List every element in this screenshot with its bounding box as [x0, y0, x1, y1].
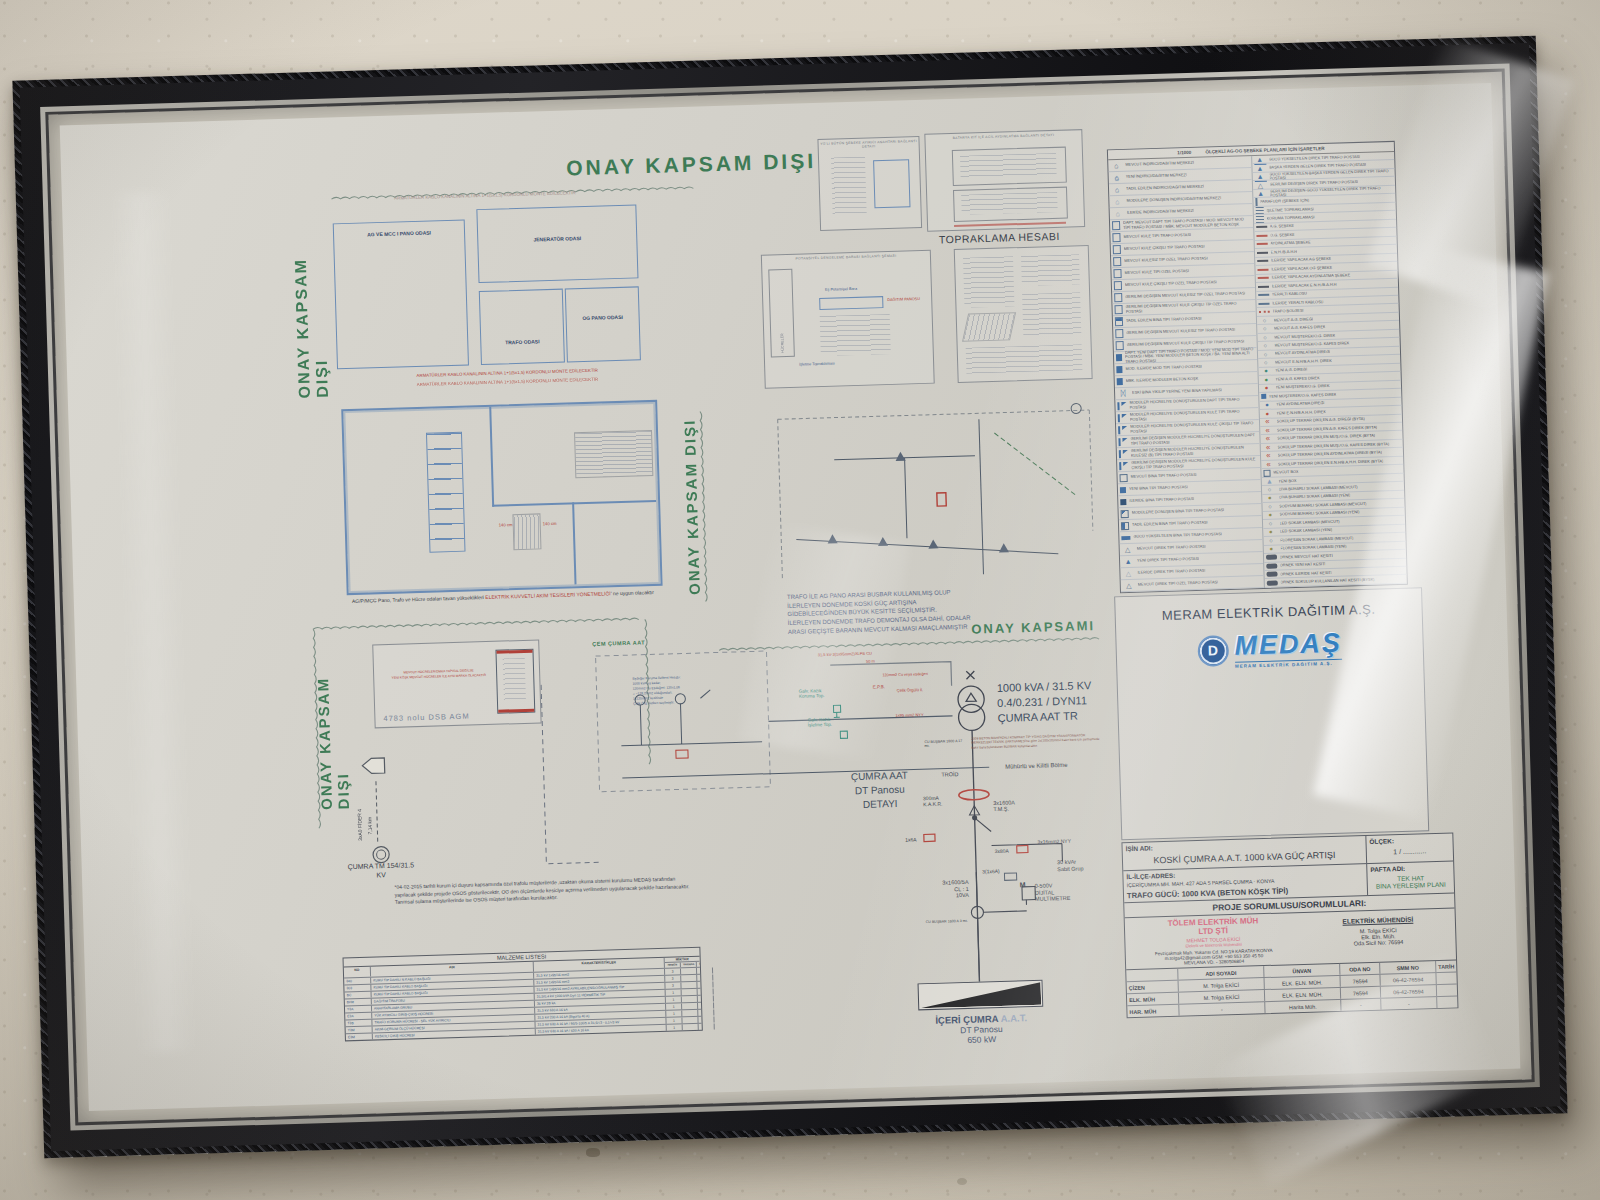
medas-logo: D MEDAŞ MERAM ELEKTRİK DAĞITIM A.Ş.	[1116, 625, 1423, 672]
legend-item-label: E.N.H./B.A.H.H	[1270, 250, 1297, 255]
stamp-onay-kapsam-disi-bottom: ONAY KAPSAM DIŞI	[313, 639, 352, 810]
legend-item-label: ÖRNEK İLERİDE HAT KESİTİ	[1280, 571, 1332, 577]
dim-label: 140 cm	[499, 522, 513, 527]
glass: ONAY KAPSAM DIŞI ONAY KAPSAM DIŞI ONAY K…	[48, 72, 1531, 1123]
legend-item-label: MEVCUT A.G. DİREĞİ	[1273, 317, 1313, 322]
legend-symbol-icon	[1256, 226, 1267, 228]
legend-item-label: MEVCUT DİREK TİPİ TRAFO POSTASI	[1137, 545, 1206, 551]
legend-symbol-icon	[1118, 425, 1127, 433]
legend-symbol-icon	[1114, 305, 1122, 314]
cable-label: 31,5 kV-3(1x95mm2)XLPE CU	[818, 651, 872, 658]
tms-label: 3x1600AT.M.Ş.	[993, 799, 1015, 812]
legend-item-label: YENİ AYDINLATMA DİREĞİ	[1276, 401, 1325, 406]
legend-title: ÖLÇEKLİ AG-OG ŞEBEKE PLANLARI İÇİN İŞARE…	[1205, 146, 1324, 155]
topraklama-hesabi-label: TOPRAKLAMA HESABI	[909, 229, 1089, 246]
troid-label: TROİD	[941, 771, 958, 778]
legend-item-label: YENİ MÜŞTEREK/O.G. KAFES DİREK	[1269, 393, 1337, 399]
legend-symbol-icon	[1263, 460, 1275, 469]
stamp-onay-kapsam-disi-left: ONAY KAPSAM DIŞI	[290, 213, 331, 399]
legend-item-label: İLERİDE YAPILACAK AG ŞEBEKE	[1271, 257, 1332, 263]
legend-symbol-icon	[1257, 285, 1268, 287]
multimeter-m: M	[1020, 881, 1026, 888]
room-label: JENERATÖR ODASI	[478, 233, 636, 244]
isin-adi-value: KOSKİ ÇUMRA A.A.T. 1000 kVA GÜÇ ARTIŞI	[1126, 849, 1363, 866]
legend-symbol-icon	[1118, 437, 1127, 445]
adres-label: İL-İLÇE-ADRES:	[1126, 872, 1175, 880]
legend-item-label: MEVCUT E.N.H/B.A.H.H. DİREK	[1275, 359, 1332, 365]
pano-label: DAĞITIM PANOSU	[887, 297, 920, 302]
legend-symbol-icon	[1116, 366, 1122, 373]
room-og-pano: OG PANO ODASI	[565, 286, 641, 362]
legend-item-label: GERİLİMİ DEĞİŞEN MEVCUT KULE ÇIKIŞLI TİP…	[1127, 340, 1245, 348]
legend-item-label: İLERİDE YERALTI KABLOSU	[1272, 300, 1324, 306]
epb-label: E.P.B.	[873, 684, 885, 689]
legend-item-label: MODÜLERE DÖNÜŞEN İNDİRİCİ/DAĞITIM MERKEZ…	[1126, 196, 1221, 203]
detail-box-title: POTANSİYEL DENGELEME BARASI BAĞLANTI ŞEM…	[762, 251, 930, 262]
legend-item-label: MEVCUT KULE ÇIKIŞLI TİP TRAFO POSTASI	[1124, 245, 1205, 251]
legend-symbol-icon	[1119, 449, 1128, 457]
detail-box-emergency-light: BATARYA KİT İLE ACİL AYDINLATMA BAĞLANTI…	[924, 129, 1085, 232]
legend-item-label: İLERİDE YAPILACAK OG ŞEBEKE	[1271, 266, 1332, 272]
legend-symbol-icon	[1261, 394, 1266, 399]
legend-left-column: MEVCUT İNDİRİCİ/DAĞITIM MERKEZİ YENİ İND…	[1108, 156, 1264, 592]
frame-silver-bevel: ONAY KAPSAM DIŞI ONAY KAPSAM DIŞI ONAY K…	[40, 63, 1540, 1130]
nyy16-label: 3x16mm2 NYY	[1037, 838, 1071, 845]
materials-table: MALZEME LİSTESİ NO ADI KARAKTERİSTİKLER …	[342, 947, 702, 1042]
muhurlu-label: Mühürlü ve Kilitli Bölme	[1005, 762, 1068, 770]
celik-label: Çelik Örgülü İl.	[897, 687, 923, 693]
legend-symbol-icon	[1112, 233, 1120, 242]
legend-symbol-icon	[1257, 277, 1268, 279]
legend-item-label: YENİ BOX	[1278, 478, 1297, 483]
legend-item-label: MEVCUT BOX	[1273, 470, 1299, 475]
legend-item-label: TADİL EDİLEN İNDİRİCİ/DAĞITIM MERKEZİ	[1126, 185, 1204, 191]
detail-box-gnd-calc	[954, 245, 1093, 383]
legend-item-label: SODYUM BUHARLI SOKAK LAMBASI (YENİ)	[1279, 510, 1359, 516]
legend-symbol-icon	[1119, 473, 1127, 481]
legend-item-label: TRAFO BÖLGESİ	[1272, 309, 1303, 314]
cem-label: ÇEM ÇUMRA AAT	[592, 639, 645, 647]
dsb-cell	[495, 649, 535, 714]
legend-item-label: KORUMA TOPRAKLAMASI	[1266, 215, 1314, 220]
isletme-top-label2: Galv. Kazıkİşletme Top.	[808, 717, 832, 728]
legend-symbol-icon	[1113, 269, 1121, 278]
legend-item-label: MBK. İLERİDE MODÜLER BETON KÖŞK	[1126, 377, 1199, 383]
legend-symbol-icon	[1260, 383, 1272, 392]
osos-note: *04-02-2015 tarihli kurum içi duyuru kap…	[394, 874, 740, 907]
legend-item-label: SÖKÜLÜP TEKRAR DİKİLEN A.G. KAFES DİREK …	[1277, 425, 1378, 432]
legend-item-label: GERİLİMİ DEĞİŞEN MODÜLER HÜCRELİYE DÖNÜŞ…	[1130, 434, 1257, 446]
legend-item-label: MEVCUT KULE ÇIKIŞLI TİP ÖZEL TRAFO POSTA…	[1125, 281, 1217, 288]
legend-item-label: GERİLİMİ DEĞİŞEN MODÜLER HÜCRELİYE DÖNÜŞ…	[1131, 458, 1258, 470]
legend-symbol-icon	[1114, 293, 1122, 302]
legend-item-label: MEVCUT KULE TİPİ TRAFO POSTASI	[1123, 233, 1191, 239]
stamp-onay-kapsam-disi-top: ONAY KAPSAM DIŞI	[541, 148, 842, 181]
busbar17-label: CU BUŞBAR 1600 A 17 mt.	[924, 739, 966, 748]
legend-symbol-icon	[1257, 260, 1268, 262]
legend-item-label: YENİ BİNA TİPİ TRAFO POSTASI	[1129, 486, 1188, 492]
legend-item-label: CİVA BUHARLI SOKAK LAMBASI (MEVCUT)	[1278, 485, 1357, 491]
legend-symbol-icon	[1117, 378, 1123, 385]
legend-symbol-icon	[1255, 189, 1267, 198]
legend-item-label: MEVCUT KULESİZ TİP ÖZEL TRAFO POSTASI	[1124, 257, 1208, 264]
legend-scale: 1/1000	[1177, 150, 1191, 155]
medas-emblem-icon: D	[1197, 635, 1229, 667]
legend-item-label: İLERİDE YAPILACAK E.N.H./B.A.H.H	[1271, 282, 1336, 288]
legend-symbol-icon	[1121, 509, 1129, 517]
legend-symbol-icon	[1263, 469, 1270, 476]
legend-item-label: MODÜLER HÜCRELİYE DÖNÜŞTÜRÜLEN KULE ÇIKI…	[1130, 422, 1257, 434]
legend-symbol-icon	[1116, 354, 1122, 361]
dsb-label: 4783 nolu DSB AGM	[383, 712, 469, 724]
legend-symbol-icon	[1116, 341, 1124, 350]
pafta-value-2: BİNA YERLEŞİM PLANI	[1371, 881, 1451, 890]
legend-symbol-icon	[1119, 461, 1128, 469]
legend-symbol-icon	[1122, 545, 1134, 554]
legend-item-label: MEVCUT MÜŞTEREK/O.G. KAFES DİREK	[1274, 341, 1349, 347]
legend-symbol-icon	[1121, 535, 1130, 539]
company-block: MERAM ELEKTRİK DAĞITIM A.Ş. D MEDAŞ MERA…	[1114, 587, 1429, 840]
legend-item-label: MODÜLERE DÖNÜŞEN BİNA TİPİ TRAFO POSTASI	[1132, 509, 1225, 516]
legend-symbol-icon	[1113, 257, 1121, 266]
legend-symbol-icon	[1121, 521, 1129, 529]
room-trafo: TRAFO ODASI	[479, 289, 565, 365]
legend-item-label: FLORESAN SOKAK LAMBASI (YENİ)	[1280, 545, 1346, 551]
legend-symbol-icon	[1266, 563, 1277, 568]
isin-adi-label: İŞİN ADI:	[1126, 844, 1153, 852]
legend-symbol-icon	[1115, 329, 1123, 338]
legend-symbol-icon	[1256, 243, 1267, 245]
busbar3-label: CU BUŞBAR 1600 A 3 mt.	[926, 919, 968, 924]
legend-item-label: ÖRNEK SÖKÜLÜP KULLANILAN HAT KESİTİ (BYS…	[1280, 578, 1374, 585]
legend-item-label: SÖKÜLÜP TEKRAR DİKİLEN E.N.H/B.A.H.H. Dİ…	[1278, 459, 1384, 466]
legend-item-label: ÖRNEK YENİ HAT KESİTİ	[1280, 562, 1326, 567]
legend-item-label: SÖKÜLÜP TEKRAR DİKİLEN A.G. DİREĞİ (BYTA…	[1276, 417, 1364, 424]
frame-inner-black: ONAY KAPSAM DIŞI ONAY KAPSAM DIŞI ONAY K…	[20, 43, 1561, 1151]
feeder-line-label: 3xA0 FİDER 4	[355, 777, 363, 841]
legend-symbol-icon	[1117, 389, 1129, 398]
legend-item-label: SÖKÜLÜP TEKRAR DİKİLEN AYDINLATMA DİREĞİ…	[1277, 450, 1382, 457]
olcek-value: 1 / ............	[1370, 847, 1450, 856]
legend-item-label: İLERİDE BİNA TİPİ TRAFO POSTASI	[1129, 497, 1194, 503]
room-label: OG PANO ODASI	[567, 313, 639, 321]
legend-item-label: TADİL EDİLEN BİNA TİPİ TRAFO POSTASI	[1126, 317, 1202, 323]
room-label: AG VE MCC I PANO ODASI	[334, 229, 464, 239]
legend-item-label: GÜCÜ YÜKSELTİLEN BİNA TİPİ TRAFO POSTASI	[1133, 533, 1222, 540]
legend-right-column: GÜCÜ YÜKSELTİLEN DİREK TİPİ TRAFO POSTAS…	[1252, 152, 1407, 588]
detail-box-switch: YG'Lİ BÜTÜN ŞEBEKE AYIRICI ANAHTARI BAĞL…	[817, 136, 922, 231]
legend-item-label: A.G. ŞEBEKE	[1270, 224, 1295, 229]
legend-item-label: TADİL EDİLEN BİNA TİPİ TRAFO POSTASI	[1132, 521, 1208, 527]
legend-symbol-icon	[1112, 209, 1124, 218]
caption-pre: AG/P/MCC Pano, Trafo ve Hücre odaları ta…	[352, 594, 486, 604]
generator-detail	[574, 430, 653, 478]
legend-item-label: SÖKÜLÜP TEKRAR DİKİLEN MÜŞ./O.G. DİREK (…	[1277, 434, 1375, 441]
legend-symbol-icon	[1111, 185, 1123, 194]
legend-item-label: YERALTI KABLOSU	[1272, 292, 1307, 297]
legend-item-label: GERİLİMİ DEĞİŞEN MODÜLER HÜCRELİYE DÖNÜŞ…	[1131, 446, 1258, 458]
eng-title: ELEKTRİK MÜHENDİSİ	[1304, 915, 1452, 926]
legend-item-label: AYDINLATMA ŞEBEKE	[1270, 241, 1311, 246]
detail-box-title: BATARYA KİT İLE ACİL AYDINLATMA BAĞLANTI…	[925, 130, 1081, 141]
legend-symbol-icon	[1257, 269, 1268, 271]
legend-item-label: İLERİDE İNDİRİCİ/DAĞITIM MERKEZİ	[1127, 209, 1195, 215]
legend-symbol-icon	[1120, 486, 1126, 492]
legend-item-label: GÜCÜ YÜKSELTİLEN DİREK TİPİ TRAFO POSTAS…	[1269, 155, 1361, 162]
legend-item-label: YENİ A.G. KAFES DİREK	[1275, 376, 1320, 381]
legend-item-label: MEVCUT BİNA TİPİ TRAFO POSTASI	[1131, 473, 1197, 479]
feeder-len-label: 7,14 km	[365, 783, 373, 835]
legend-item-label: MEVCUT A.G. KAFES DİREK	[1274, 325, 1326, 331]
legend-symbol-icon	[1114, 281, 1122, 290]
legend-symbol-icon	[1111, 173, 1123, 182]
dsb-agm-box: MEVCUT HÜCRELER/DMKA YAPISAL DEĞİLSEYENİ…	[372, 639, 541, 728]
legend-item-label: YENİ A.G. DİREĞİ	[1275, 368, 1307, 373]
f3-label: 3(1x6A)	[982, 868, 1000, 875]
pafta-label: PAFTA ADI:	[1370, 865, 1405, 873]
legend-item-label: YENİ E.N.H/B.A.H.H. DİREK	[1276, 410, 1326, 416]
medas-wordmark: MEDAŞ	[1234, 628, 1342, 662]
photo-of-framed-electrical-plan: { "colors":{"stamp_green":"#3e7b56","pla…	[0, 0, 1600, 1200]
legend-item-label: MEVCUT KULE TİPİ ÖZEL POSTASI	[1124, 269, 1189, 275]
legend-symbol-icon	[1266, 572, 1277, 577]
load-caption: İÇERİ ÇUMRA A.A.T. DT Panosu 650 kW	[898, 1011, 1064, 1047]
legend-item-label: MEVCUT DİREK TİPİ ÖZEL TRAFO POSTASI	[1138, 581, 1219, 587]
dim-label: 140 cm	[543, 521, 557, 526]
materials-rows: 340 KURU TİP DAHİLİ N KABLO BAŞLIĞI 31,5…	[344, 968, 702, 1041]
legend-item-label: İLERİDE YAPILACAK AYDINLATMA ŞEBEKE	[1271, 274, 1350, 280]
esdeger-hesap: Eşdeğer Koruma İletkeni Hesabı:1000 kVA …	[632, 674, 729, 706]
signature-table: ADI SOYADI ÜNVAN ODA NO SMM NO TARİH ÇİZ…	[1126, 959, 1457, 1017]
wall-scuff	[586, 1148, 600, 1157]
legend-table: 1/1000 ÖLÇEKLİ AG-OG ŞEBEKE PLANLARI İÇİ…	[1107, 141, 1408, 593]
hucreler-label: HÜCRELER	[778, 273, 784, 353]
company-title: MERAM ELEKTRİK DAĞITIM A.Ş.	[1116, 600, 1422, 624]
legend-symbol-icon	[1258, 311, 1269, 313]
legend-symbol-icon	[1111, 197, 1123, 206]
cable-len: 50 m	[866, 659, 875, 664]
legend-item-label: MEVCUT MÜŞTEREK/O.G. DİREK	[1274, 333, 1335, 339]
legend-item-label: YENİ İNDİRİCİ/DAĞITIM MERKEZİ	[1126, 174, 1187, 180]
legend-symbol-icon	[1255, 207, 1263, 214]
legend-item-label: GERİLİMİ DEĞİŞEN MEVCUT KULESİZ TİP ÖZEL…	[1125, 292, 1245, 300]
f1-label: 1x6A	[905, 836, 917, 842]
legend-symbol-icon	[1113, 245, 1121, 254]
ct-label: 3x1600/5ACL : 110VA	[924, 879, 969, 900]
legend-item-label: MODÜLER HÜCRELİYE DÖNÜŞTÜRÜLEN KULE TİPİ…	[1130, 410, 1257, 422]
bara-label: Eş Potansiyel Bara	[825, 287, 857, 292]
cable-ladder	[426, 432, 466, 553]
legend-symbol-icon	[1258, 302, 1269, 304]
title-block: İŞİN ADI: KOSKİ ÇUMRA A.A.T. 1000 kVA GÜ…	[1121, 832, 1458, 1018]
legend-item-label: SODYUM BUHARLI SOKAK LAMBASI (MEVCUT)	[1279, 502, 1367, 509]
legend-item-label: ÖRNEK MEVCUT HAT KESİTİ	[1279, 554, 1332, 560]
legend-item-label: CİVA BUHARLI SOKAK LAMBASI (YENİ)	[1279, 494, 1351, 500]
legend-item-label: MEVCUT AYDINLATMA DİREĞİ	[1274, 350, 1330, 356]
room-jenerator: JENERATÖR ODASI	[476, 204, 638, 283]
tm-label: ÇUMRA TM 154/31.5KV	[325, 860, 438, 882]
legend-symbol-icon	[1120, 498, 1126, 504]
legend-symbol-icon	[1118, 413, 1127, 421]
legend-item-label: YENİ DİREK TİPİ TRAFO POSTASI	[1137, 557, 1199, 563]
legend-item-label: MEVCUT İNDİRİCİ/DAĞITIM MERKEZİ	[1125, 161, 1194, 167]
room-ag-mcc: AG VE MCC I PANO ODASI	[333, 219, 469, 369]
legend-symbol-icon	[1110, 161, 1122, 170]
legend-symbol-icon	[1255, 215, 1263, 222]
legend-item-label: GERİLİMİ DEĞİŞEN DİREK TİPİ TRAFO POSTAS…	[1269, 180, 1358, 187]
frame-gap: ONAY KAPSAM DIŞI ONAY KAPSAM DIŞI ONAY K…	[45, 69, 1534, 1126]
legend-symbol-icon	[1258, 294, 1269, 296]
nyy95-label: 1x95 mm2 NYY	[895, 712, 923, 718]
multimetre-label: 0-500VDİJİTALMULTİMETRE	[1035, 882, 1071, 903]
legend-item-label: ESKİ BİNA YIKILIP YERİNE YENİ BİNA YAPIL…	[1132, 389, 1222, 396]
caption-red: ELEKTRİK KUVVETLİ AKIM TESİSLERİ YÖNETME…	[485, 590, 611, 600]
spec-line: ÇUMRA AAT TR	[997, 707, 1117, 725]
kvar-label: 30 kVArSabit Grup	[1057, 858, 1084, 873]
busbar-notes: TRAFO İLE AG PANO ARASI BUSBAR KULLANILM…	[787, 584, 1078, 636]
isletme-top-label: İşletme Topraklaması	[799, 362, 835, 367]
olcek-label: ÖLÇEK:	[1369, 837, 1394, 845]
caption-post: ' ne uygun olacaktır	[611, 589, 654, 596]
legend-symbol-icon	[1122, 557, 1134, 566]
cu120-label: 120mm2 Cu veya eşdeğeri	[882, 672, 927, 677]
room-label: TRAFO ODASI	[481, 338, 563, 346]
plan1-note-top: ARMATÜRLER KABLO KANALININ ALTINA 1+1(5x…	[330, 188, 640, 202]
drawing-sheet: ONAY KAPSAM DIŞI ONAY KAPSAM DIŞI ONAY K…	[60, 83, 1521, 1111]
legend-symbol-icon	[1115, 317, 1123, 326]
legend-symbol-icon	[1255, 198, 1257, 206]
wall-scuff	[957, 1178, 967, 1185]
legend-item-label: GERİLİMİ DEĞİŞEN MEVCUT KULESİZ TİP TRAF…	[1126, 328, 1235, 335]
legend-item-label: MODÜLER HÜCRELİYE DÖNÜŞTÜRÜLEN DAPT TİPİ…	[1129, 398, 1256, 410]
legend-symbol-icon	[1117, 401, 1126, 409]
sartname-note: 2008 BETON MAHFAZALI KOMPAKT TİP YG/AG D…	[971, 733, 1106, 750]
legend-symbol-icon	[1256, 235, 1267, 237]
legend-symbol-icon	[1266, 580, 1277, 585]
load-suffix: A.A.T.	[1000, 1012, 1027, 1024]
koruma-top-label: Galv. KazıkKoruma Top.	[799, 688, 825, 699]
f2-label: 3x80A	[995, 848, 1009, 854]
legend-item-label: FLORESAN SOKAK LAMBASI (MEVCUT)	[1280, 536, 1354, 542]
legend-symbol-icon	[1123, 581, 1135, 590]
detail-box-title: YG'Lİ BÜTÜN ŞEBEKE AYIRICI ANAHTARI BAĞL…	[818, 137, 918, 150]
transformer-spec: 1000 kVA / 31.5 KV 0.4/0.231 / DYN11 ÇUM…	[997, 677, 1118, 725]
legend-item-label: PARAFUDR (ŞEBEKE İÇİN)	[1260, 198, 1309, 204]
legend-item-label: O.G. ŞEBEKE	[1270, 233, 1295, 238]
legend-symbol-icon	[1265, 544, 1277, 553]
load-wedge	[920, 982, 1042, 1009]
legend-item-label: YENİ MÜŞTEREK/O.G. DİREK	[1275, 384, 1329, 390]
floor-plan-2: 140 cm 140 cm	[341, 400, 662, 595]
detail-box-potansiyel: POTANSİYEL DENGELEME BARASI BAĞLANTI ŞEM…	[761, 250, 935, 389]
dt-detay-label: ÇUMRA AATDT PanosuDETAYI	[821, 768, 938, 813]
legend-item-label: LED SOKAK LAMBASI (MEVCUT)	[1279, 520, 1339, 526]
legend-item-label: İLERİDE DİREK TİPİ TRAFO POSTASI	[1137, 569, 1205, 575]
legend-symbol-icon	[1256, 252, 1267, 254]
legend-symbol-icon	[1122, 569, 1134, 578]
dsb-red-note: MEVCUT HÜCRELER/DMKA YAPISAL DEĞİLSEYENİ…	[386, 668, 491, 681]
building-plan-1: AG VE MCC I PANO ODASI JENERATÖR ODASI T…	[330, 202, 641, 371]
load-profile-box	[918, 980, 1044, 1011]
legend-item-label: LED SOKAK LAMBASI (YENİ)	[1280, 528, 1333, 534]
legend-symbol-icon	[1112, 221, 1120, 230]
legend-item-label: MOD. İLERİDE MOD TİPİ TRAFO POSTASI	[1125, 365, 1202, 371]
stamp-onay-kapsam-disi-mid: ONAY KAPSAM DIŞI	[681, 417, 703, 595]
legend-symbol-icon	[1265, 555, 1276, 560]
legend-item-label: İŞLETME TOPRAKLAMASI	[1266, 207, 1314, 212]
picture-frame: ONAY KAPSAM DIŞI ONAY KAPSAM DIŞI ONAY K…	[12, 36, 1567, 1159]
